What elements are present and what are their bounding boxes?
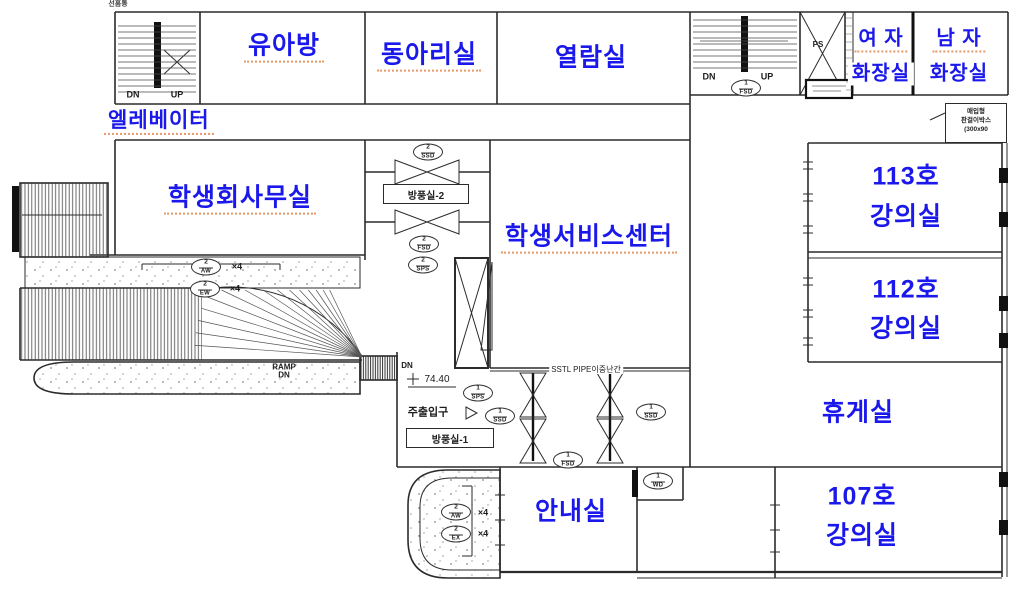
label-room-112-1: 112호 (868, 276, 943, 305)
floor-level-text: 74.40 (424, 375, 449, 385)
label-womens-restroom-1: 여 자 (854, 28, 907, 53)
symbol-fsd-1a: 1FSD (553, 452, 583, 469)
banner-hanger-box: 매입형 판걸이박스 (300x90 (945, 103, 1007, 143)
label-room-113-2: 강의실 (866, 203, 946, 232)
vestibule-2-box: 방풍실-2 (383, 184, 469, 204)
times4-text-3: ×4 (478, 509, 488, 518)
label-room-107-1: 107호 (824, 483, 901, 512)
times4-text-2: ×4 (230, 285, 240, 294)
main-entrance-text: 주출입구 (408, 408, 448, 419)
label-infant-room: 유아방 (244, 32, 324, 63)
symbol-sps-2: 2SPS (408, 257, 438, 274)
label-club-room: 동아리실 (377, 41, 481, 72)
symbol-aw-2a: 2AW (191, 259, 221, 276)
label-room-107-2: 강의실 (822, 522, 902, 551)
pipe-shaft-text: PS (813, 41, 824, 49)
symbol-ex-2: 2EX (441, 526, 471, 543)
label-student-council-office: 학생회사무실 (164, 184, 316, 215)
vestibule-1-box: 방풍실-1 (406, 428, 494, 448)
symbol-fsd-2: 2FSD (409, 236, 439, 253)
label-student-service-center: 학생서비스센터 (501, 223, 677, 254)
label-information-room: 안내실 (531, 498, 611, 527)
symbol-ssd-2a: 2SSD (413, 144, 443, 161)
symbol-ssd-1a: 1SSD (485, 408, 515, 425)
symbol-ssd-1b: 1SSD (636, 404, 666, 421)
label-lounge: 휴게실 (818, 399, 898, 428)
times4-text-4: ×4 (478, 530, 488, 539)
label-mens-restroom-1: 남 자 (932, 28, 985, 53)
entrance-dn-text: DN (401, 362, 413, 370)
symbol-ew-2: 2EW (190, 281, 220, 298)
symbol-aw-2b: 2AW (441, 504, 471, 521)
railing-note-text: SSTL PIPE이중난간 (549, 366, 623, 374)
stair2-up-text: UP (761, 73, 774, 82)
symbol-sps-1: 1SPS (463, 385, 493, 402)
label-mens-restroom-2: 화장실 (926, 63, 992, 86)
symbol-fsd-1b: 1FSD (731, 80, 761, 97)
ramp-dn-text: RAMP DN (272, 364, 296, 381)
label-room-113-1: 113호 (868, 163, 943, 192)
stair1-dn-text: DN (127, 91, 140, 100)
label-reading-room: 열람실 (551, 44, 631, 73)
symbol-wd-1: 1WD (643, 473, 673, 490)
label-room-112-2: 강의실 (866, 315, 946, 344)
label-womens-restroom-2: 화장실 (848, 63, 914, 86)
times4-text-1: ×4 (232, 263, 242, 272)
downspout-text: 선홈통 (108, 1, 127, 8)
stair2-dn-text: DN (703, 73, 716, 82)
label-elevator: 엘레베이터 (104, 109, 214, 135)
floor-plan-page: 유아방 동아리실 열람실 여 자 화장실 남 자 화장실 엘레베이터 학생회사무… (0, 0, 1020, 591)
stair1-up-text: UP (171, 91, 184, 100)
